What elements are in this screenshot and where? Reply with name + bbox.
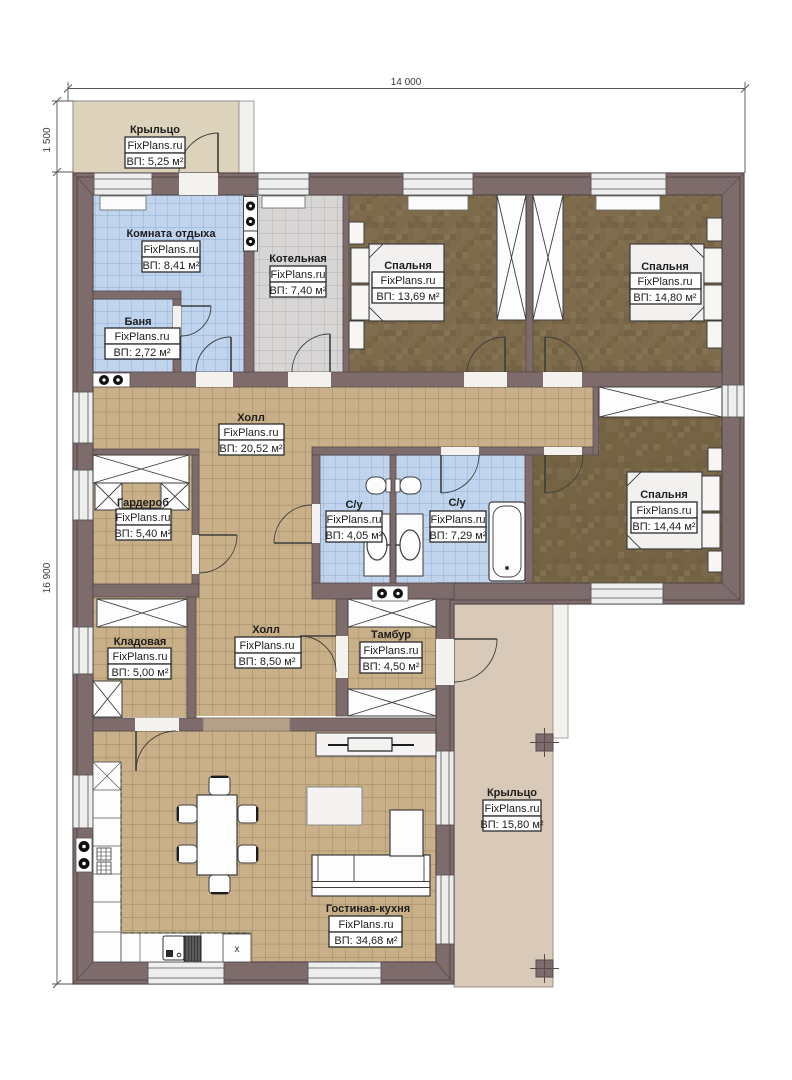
- svg-text:16 900: 16 900: [42, 562, 53, 593]
- svg-text:Спальня: Спальня: [384, 260, 432, 272]
- svg-text:Спальня: Спальня: [641, 261, 689, 273]
- svg-text:1 500: 1 500: [42, 127, 53, 152]
- svg-text:FixPlans.ru: FixPlans.ru: [115, 512, 170, 524]
- svg-text:FixPlans.ru: FixPlans.ru: [326, 514, 381, 526]
- svg-text:Кладовая: Кладовая: [114, 636, 167, 648]
- svg-text:Крыльцо: Крыльцо: [487, 787, 537, 799]
- svg-text:ВП: 7,40 м²: ВП: 7,40 м²: [269, 285, 326, 297]
- svg-text:Тамбур: Тамбур: [371, 629, 411, 641]
- svg-text:FixPlans.ru: FixPlans.ru: [380, 275, 435, 287]
- svg-text:ВП: 5,40 м²: ВП: 5,40 м²: [114, 528, 171, 540]
- svg-text:ВП: 5,25 м²: ВП: 5,25 м²: [126, 156, 183, 168]
- svg-text:FixPlans.ru: FixPlans.ru: [239, 640, 294, 652]
- svg-text:Гардероб: Гардероб: [117, 497, 169, 509]
- svg-text:FixPlans.ru: FixPlans.ru: [430, 514, 485, 526]
- svg-text:Котельная: Котельная: [269, 253, 327, 265]
- svg-text:ВП: 15,80 м²: ВП: 15,80 м²: [480, 819, 544, 831]
- svg-text:ВП: 4,05 м²: ВП: 4,05 м²: [325, 530, 382, 542]
- svg-text:FixPlans.ru: FixPlans.ru: [112, 651, 167, 663]
- svg-text:FixPlans.ru: FixPlans.ru: [114, 331, 169, 343]
- svg-text:ВП: 4,50 м²: ВП: 4,50 м²: [362, 661, 419, 673]
- svg-text:x: x: [235, 944, 240, 955]
- svg-text:С/у: С/у: [448, 497, 466, 509]
- svg-text:FixPlans.ru: FixPlans.ru: [636, 505, 691, 517]
- svg-text:ВП: 2,72 м²: ВП: 2,72 м²: [113, 347, 170, 359]
- svg-text:ВП: 14,44 м²: ВП: 14,44 м²: [632, 521, 696, 533]
- svg-text:FixPlans.ru: FixPlans.ru: [143, 244, 198, 256]
- svg-text:Гостиная-кухня: Гостиная-кухня: [326, 903, 410, 915]
- svg-text:ВП: 8,41 м²: ВП: 8,41 м²: [142, 260, 199, 272]
- svg-text:ВП: 34,68 м²: ВП: 34,68 м²: [334, 935, 398, 947]
- svg-text:Баня: Баня: [124, 316, 151, 328]
- svg-text:FixPlans.ru: FixPlans.ru: [484, 803, 539, 815]
- svg-text:С/у: С/у: [345, 499, 363, 511]
- svg-text:ВП: 13,69 м²: ВП: 13,69 м²: [376, 291, 440, 303]
- svg-text:Крыльцо: Крыльцо: [130, 124, 180, 136]
- svg-text:14 000: 14 000: [391, 77, 422, 88]
- svg-text:Комната отдыха: Комната отдыха: [126, 228, 216, 240]
- svg-text:ВП: 5,00 м²: ВП: 5,00 м²: [111, 667, 168, 679]
- svg-text:Холл: Холл: [237, 412, 265, 424]
- svg-text:ВП: 20,52 м²: ВП: 20,52 м²: [219, 443, 283, 455]
- svg-text:FixPlans.ru: FixPlans.ru: [637, 276, 692, 288]
- svg-text:ВП: 8,50 м²: ВП: 8,50 м²: [238, 656, 295, 668]
- svg-text:FixPlans.ru: FixPlans.ru: [363, 645, 418, 657]
- svg-text:FixPlans.ru: FixPlans.ru: [223, 427, 278, 439]
- svg-text:Спальня: Спальня: [640, 489, 688, 501]
- svg-text:FixPlans.ru: FixPlans.ru: [270, 269, 325, 281]
- svg-text:Холл: Холл: [252, 624, 280, 636]
- svg-text:FixPlans.ru: FixPlans.ru: [338, 919, 393, 931]
- svg-text:ВП: 7,29 м²: ВП: 7,29 м²: [429, 530, 486, 542]
- svg-text:FixPlans.ru: FixPlans.ru: [127, 140, 182, 152]
- svg-text:ВП: 14,80 м²: ВП: 14,80 м²: [633, 292, 697, 304]
